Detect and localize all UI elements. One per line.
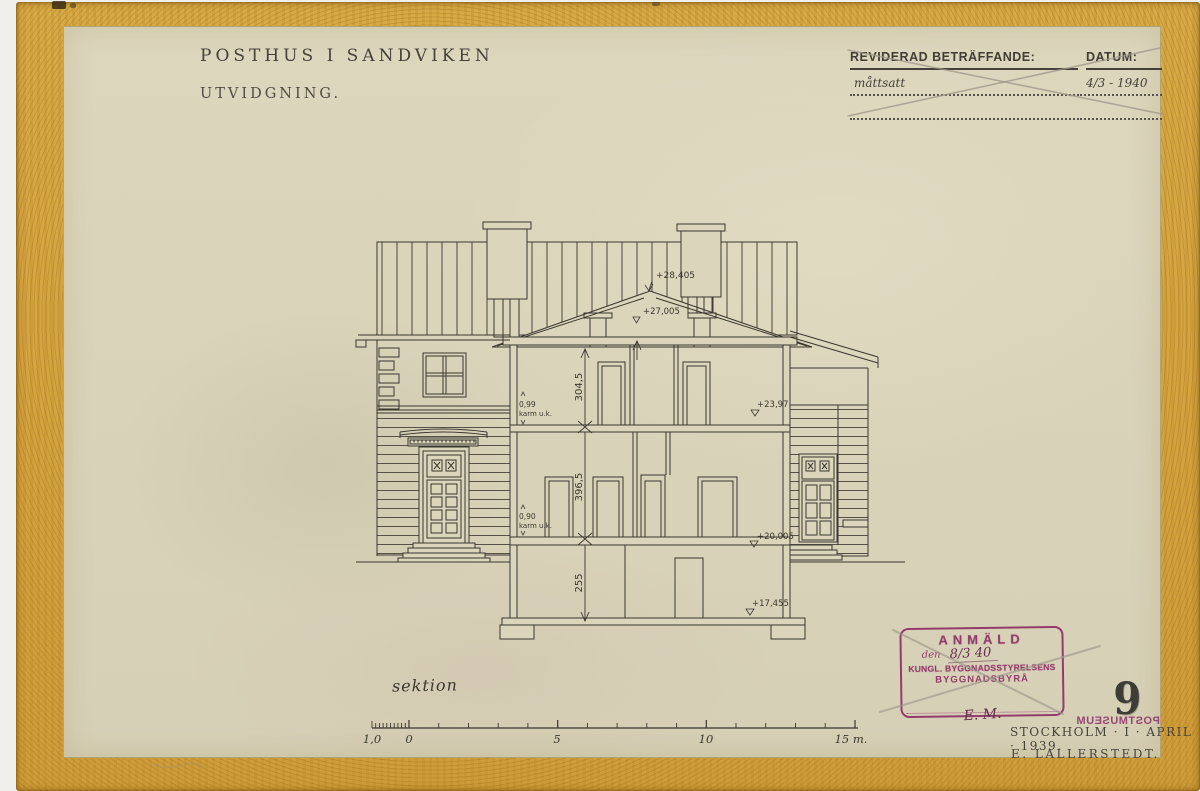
annotation-karm-lower-text: karm u.k. xyxy=(519,522,552,530)
scale-bar: 1,0 0 5 10 15 m. xyxy=(360,700,880,750)
basement-interior xyxy=(625,545,703,618)
stamp-date-value: 8/3 40 xyxy=(947,645,997,663)
revision-row: måttsatt 4/3 - 1940 xyxy=(850,76,1162,96)
tape-stain xyxy=(52,1,66,9)
dimension-label-attic-height: 304,5 xyxy=(574,373,585,402)
approval-stamp: ANMÄLD den 8/3 40 KUNGL. BYGGNADSSTYRELS… xyxy=(899,626,1064,718)
right-facade xyxy=(790,331,905,562)
revision-header-subject: REVIDERAD BETRÄFFANDE: xyxy=(850,50,1078,70)
revision-block: REVIDERAD BETRÄFFANDE: DATUM: måttsatt 4… xyxy=(850,50,1162,120)
scale-label-minus-1: 1,0 xyxy=(363,732,381,746)
project-subtitle: UTVIDGNING. xyxy=(200,86,341,102)
elevation-label-attic: +27,005 xyxy=(643,307,680,317)
revision-header-date: DATUM: xyxy=(1086,50,1162,70)
section-structure xyxy=(500,345,805,639)
revision-date: 4/3 - 1940 xyxy=(1084,76,1162,96)
tape-stain xyxy=(652,2,660,6)
annotation-karm-lower-value: 0,90 xyxy=(519,512,536,521)
elevation-label-upper-floor: +23,97 xyxy=(757,400,788,410)
attic-interior xyxy=(598,345,710,425)
dimension-label-floor-height: 396,5 xyxy=(574,473,585,502)
drawing-label: sektion xyxy=(392,675,458,695)
annotation-karm-upper-value: 0,99 xyxy=(519,400,536,409)
scale-label-0: 0 xyxy=(405,732,412,746)
tape-stain xyxy=(70,3,76,8)
revision-row xyxy=(850,102,1162,120)
elevation-label-ground-floor: +20,005 xyxy=(757,532,794,542)
stamp-den-label: den xyxy=(922,650,941,661)
stamp-bureau: BYGGNADSBYRÅ xyxy=(902,673,1062,686)
scale-label-10: 10 xyxy=(699,732,714,746)
revision-subject: måttsatt xyxy=(850,76,1082,96)
scale-label-5: 5 xyxy=(553,732,560,746)
dimension-label-basement-height: 255 xyxy=(574,573,585,592)
elevation-label-ridge: +28,405 xyxy=(656,271,695,281)
project-title: POSTHUS I SANDVIKEN xyxy=(200,46,494,66)
scale-label-15m: 15 m. xyxy=(835,732,868,746)
section-drawing: +28,405 +27,005 +23,97 +20,005 +17,455 3… xyxy=(350,215,910,675)
stamp-date-row: den 8/3 40 xyxy=(922,645,1062,663)
scanned-drawing-sheet: { "page": { "sheet_number": "9", "paper_… xyxy=(0,0,1200,791)
revision-date xyxy=(1084,102,1162,120)
left-facade xyxy=(356,335,510,562)
revision-subject xyxy=(850,102,1082,120)
architect-signature: E. LALLERSTEDT. xyxy=(1011,747,1160,761)
annotation-karm-upper-text: karm u.k. xyxy=(519,410,552,418)
attic-floor-slab xyxy=(503,337,797,345)
elevation-label-basement: +17,455 xyxy=(752,599,789,609)
revision-headers: REVIDERAD BETRÄFFANDE: DATUM: xyxy=(850,50,1162,70)
chimney-right xyxy=(677,224,725,297)
